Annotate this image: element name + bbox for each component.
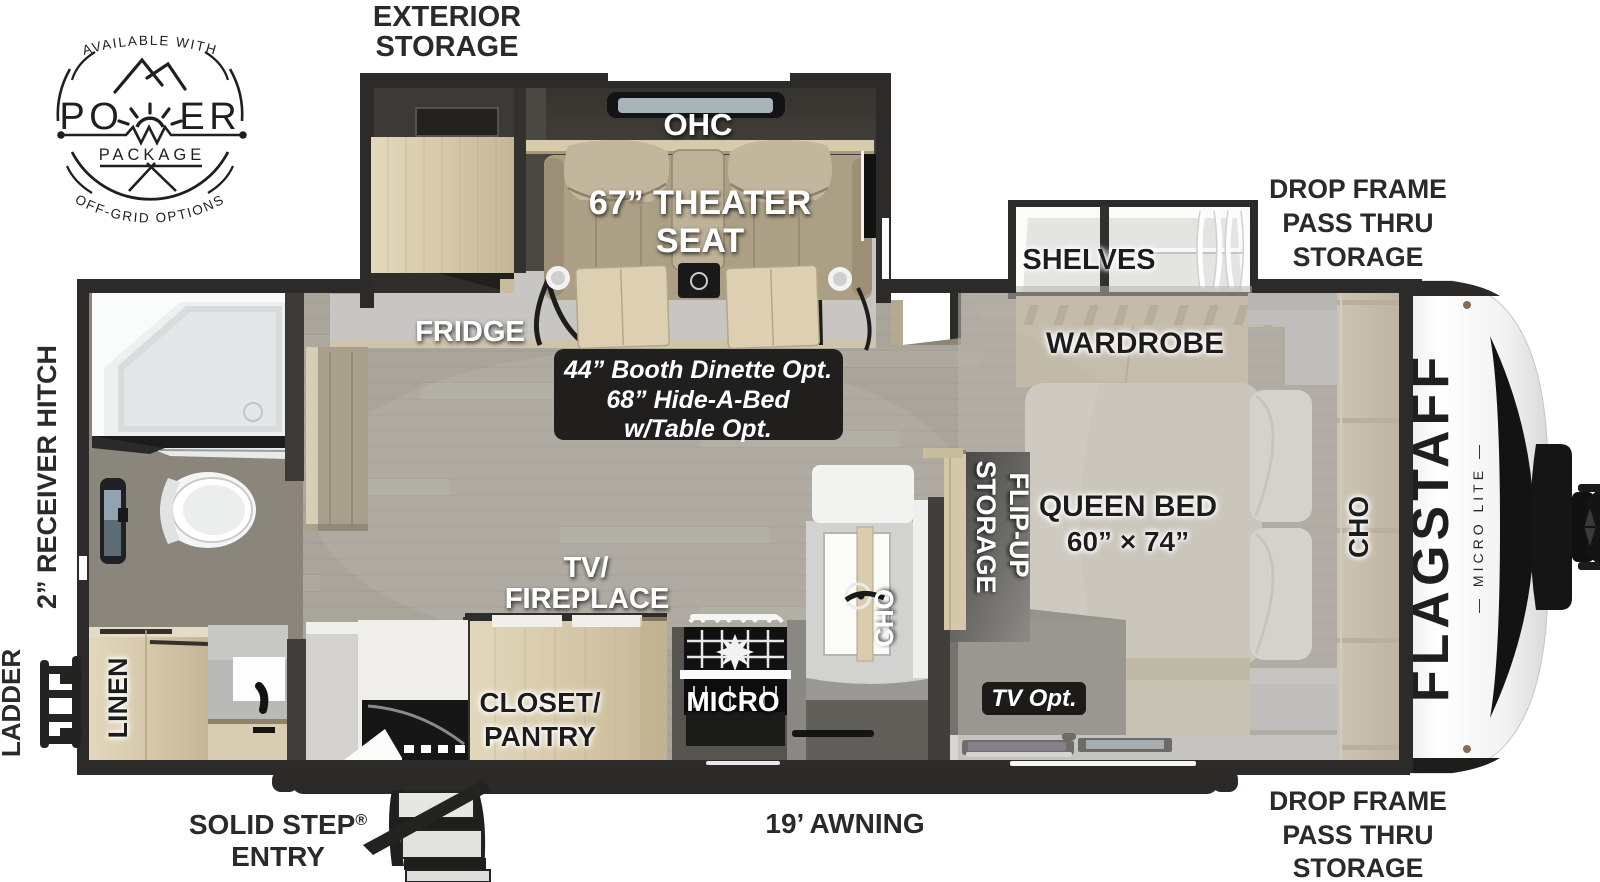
svg-text:PACKAGE: PACKAGE [99,146,206,164]
svg-text:E: E [179,96,204,138]
svg-text:ENTRY: ENTRY [231,841,325,872]
svg-text:FIREPLACE: FIREPLACE [505,583,669,615]
svg-text:TV/: TV/ [563,552,608,584]
svg-text:MICRO: MICRO [686,686,779,717]
svg-text:— MICRO LITE —: — MICRO LITE — [1470,441,1486,613]
svg-text:PANTRY: PANTRY [484,721,596,752]
svg-text:OHC: OHC [664,107,733,142]
svg-text:STORAGE: STORAGE [1293,853,1424,882]
svg-text:CHO: CHO [869,589,899,647]
svg-text:DROP FRAME: DROP FRAME [1269,786,1447,816]
svg-text:P: P [59,96,84,138]
svg-text:60” × 74”: 60” × 74” [1067,526,1189,557]
svg-text:67” THEATER: 67” THEATER [589,184,811,222]
svg-text:FRIDGE: FRIDGE [415,316,525,348]
svg-text:19’ AWNING: 19’ AWNING [765,808,924,839]
svg-text:SEAT: SEAT [656,222,744,260]
svg-text:O: O [89,96,119,138]
svg-text:44” Booth Dinette Opt.: 44” Booth Dinette Opt. [563,356,832,384]
svg-text:STORAGE: STORAGE [971,460,1001,593]
svg-text:SOLID STEP®: SOLID STEP® [189,809,367,840]
svg-text:EXTERIOR: EXTERIOR [373,1,521,33]
svg-text:WARDROBE: WARDROBE [1046,327,1224,360]
svg-text:LINEN: LINEN [103,658,133,739]
svg-text:PASS THRU: PASS THRU [1282,820,1433,850]
svg-text:FLIP-UP: FLIP-UP [1004,473,1034,578]
svg-text:SHELVES: SHELVES [1022,244,1155,276]
svg-text:PASS THRU: PASS THRU [1282,208,1433,238]
svg-text:2” RECEIVER HITCH: 2” RECEIVER HITCH [32,345,62,609]
svg-text:CLOSET/: CLOSET/ [479,687,601,718]
svg-text:DROP FRAME: DROP FRAME [1269,174,1447,204]
svg-text:68” Hide-A-Bed: 68” Hide-A-Bed [606,386,790,414]
svg-text:LADDER: LADDER [0,649,26,758]
svg-text:STORAGE: STORAGE [1293,242,1424,272]
svg-text:CHO: CHO [1343,496,1374,558]
svg-text:QUEEN BED: QUEEN BED [1039,490,1217,523]
svg-text:R: R [209,96,236,138]
svg-text:TV Opt.: TV Opt. [991,685,1076,712]
svg-text:STORAGE: STORAGE [376,31,519,63]
svg-text:w/Table Opt.: w/Table Opt. [624,415,772,443]
